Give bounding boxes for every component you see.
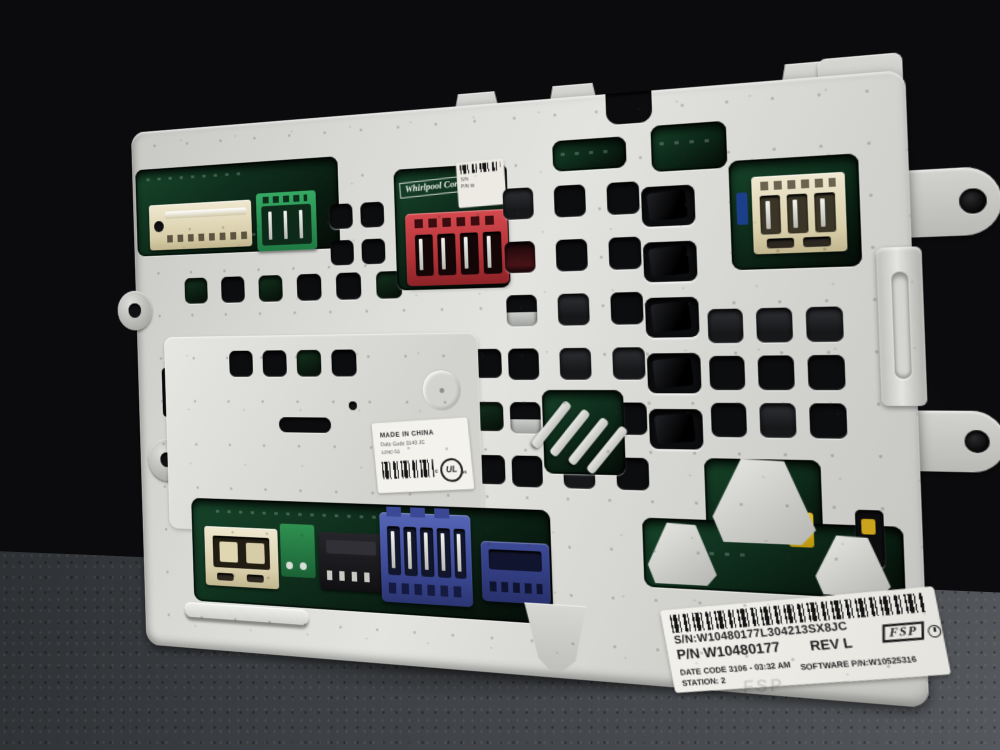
relay-hole [807,355,845,390]
embossed-fsp-text: FSP [741,676,786,698]
sticker-line3: L0NC-53 [381,449,400,456]
connector-pins [327,570,377,582]
relay-hole [707,309,743,344]
vent-hole [296,350,321,377]
terminal-teeth [263,194,308,203]
terminal-dot [286,561,293,569]
label-date-code: DATE CODE 3106 - 03:32 AM [679,660,791,678]
photo-scene: Whirlpool Corp. S/N P/N W [0,0,1000,750]
connector-tabs [386,507,459,519]
green-terminal-block [280,524,316,579]
relay-hole [557,293,589,325]
circle-center-dot [439,388,444,393]
pcb-window [552,136,626,172]
relay-hole [511,456,543,488]
relay-hole [559,348,591,380]
vent-hole [221,276,245,303]
molded-circle [422,370,461,410]
label-revision: REV L [809,635,854,654]
connector-teeth [389,582,466,597]
relay-hole [508,348,540,380]
relay-hole [759,403,796,438]
relay-hole [510,402,542,434]
vent-hole [258,275,283,302]
partial-label-line: P/N W [461,183,475,190]
relay-hole [756,307,793,342]
made-in-china-sticker: MADE IN CHINA Date Code 3143 JC L0NC-53 … [371,417,474,493]
bottom-blue-connector [379,512,473,607]
connector-top [326,540,376,556]
relay-hole [709,356,745,390]
edge-notch [605,90,652,125]
connector-highlight [165,207,247,219]
barcode [460,161,501,174]
panel-slot [279,417,331,433]
control-board: Whirlpool Corp. S/N P/N W [131,70,929,708]
relay-hole [711,403,747,438]
bottom-small-blue-connector [481,541,552,605]
relay-hole [612,347,645,379]
three-slot-connector [751,172,848,255]
relay-slot [645,297,700,338]
label-station: STATION: 2 [681,675,726,688]
clock-symbol-icon [927,625,943,638]
vent-hole [229,351,253,377]
relay-hole [806,306,844,342]
relay-hole [809,403,847,438]
relay-slot [649,409,704,450]
relay-hole [504,241,535,273]
vent-hole [297,274,322,301]
fsp-logo-icon: FSP [882,621,924,642]
relay-hole [506,295,537,327]
vent-hole [361,238,385,264]
relay-hole [556,239,588,272]
bottom-beige-connector [204,526,279,589]
red-connector [405,209,510,286]
relay-hole [608,237,641,270]
vent-hole [330,240,354,266]
label-software: SOFTWARE P/N:W10525316 [800,654,918,672]
ul-cert-prefix: c [435,469,439,475]
vent-hole [360,202,384,228]
relay-slot [647,353,702,393]
sticker-line1: MADE IN CHINA [380,429,434,439]
vent-hole [184,278,207,304]
pcb-window [650,121,727,172]
connector-teeth [414,215,499,228]
relay-slot [643,241,698,283]
relay-hole [502,187,533,220]
panel-hole [349,401,357,410]
yellow-component [861,519,876,535]
relay-slot [641,184,696,227]
terminal-dot [300,562,307,570]
connector-teeth [490,581,543,594]
connector-teeth [167,231,247,242]
blue-component [736,192,748,225]
barcode [382,459,435,479]
sticker-line2: Date Code 3143 JC [381,440,426,448]
wire-header-connector [149,200,253,251]
relay-hole [610,292,643,325]
partial-label: S/N P/N W [456,158,507,208]
mounting-hole [964,430,990,453]
vent-hole [262,350,287,376]
relay-hole [758,355,795,390]
relay-hole [606,181,639,215]
silkscreen [146,172,243,181]
vent-hole [329,203,353,229]
boss-hole [128,303,141,318]
connector-hole [154,221,164,232]
green-terminal-header [256,190,318,251]
rib-slot [891,271,912,379]
relay-hole [554,184,586,217]
edge-rib [876,246,928,406]
ul-cert-suffix: us [461,469,467,475]
bottom-black-connector [319,532,385,593]
vent-hole [336,272,362,300]
partial-label-line: S/N [460,176,468,183]
connector-teeth [760,178,836,191]
mounting-hole [959,188,987,214]
vent-hole [331,349,357,376]
